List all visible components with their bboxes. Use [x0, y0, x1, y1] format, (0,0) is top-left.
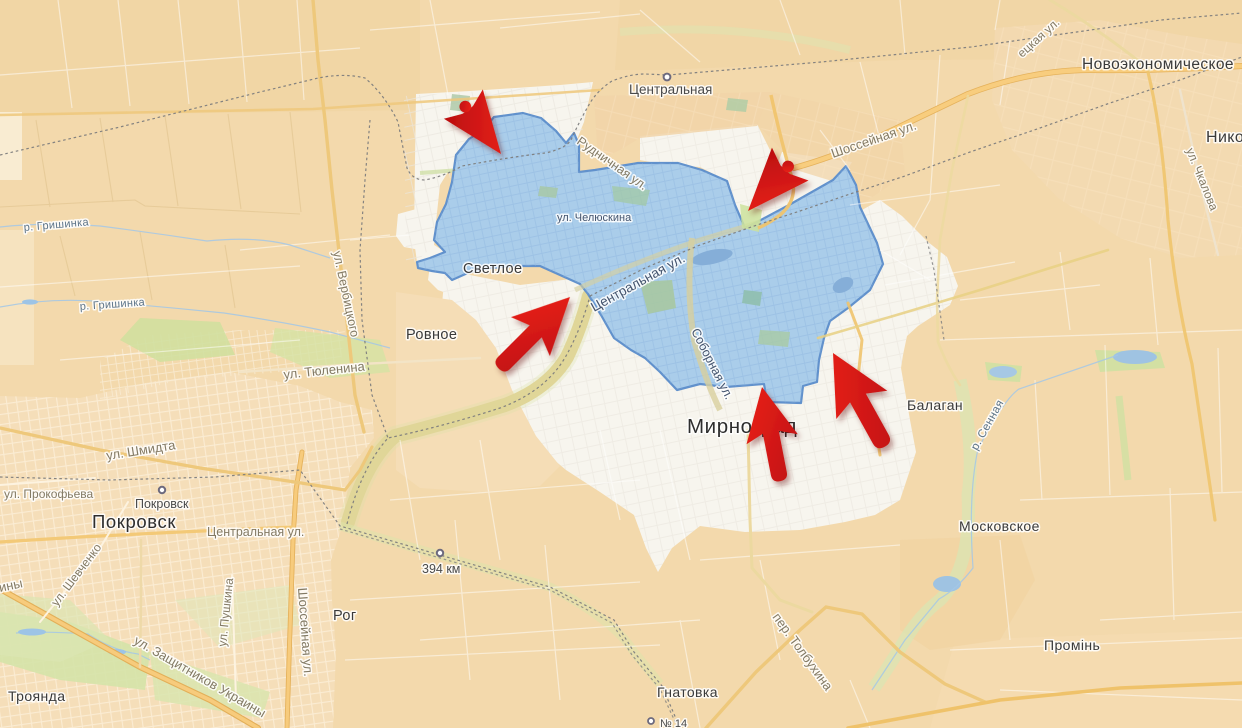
svg-text:Рог: Рог	[333, 608, 357, 624]
svg-text:Светлое: Светлое	[463, 261, 522, 277]
svg-text:Гнатовка: Гнатовка	[657, 684, 718, 700]
svg-text:Никол: Никол	[1206, 129, 1242, 146]
svg-text:Троянда: Троянда	[8, 688, 65, 704]
svg-text:ул. Челюскина: ул. Челюскина	[557, 212, 632, 224]
svg-text:Балаган: Балаган	[907, 397, 963, 413]
svg-text:394 км: 394 км	[422, 562, 460, 576]
svg-text:Покровск: Покровск	[135, 497, 189, 511]
svg-text:Новоэкономическое: Новоэкономическое	[1082, 56, 1234, 73]
svg-text:Московское: Московское	[959, 518, 1040, 534]
svg-text:ул. Прокофьева: ул. Прокофьева	[4, 487, 93, 501]
svg-text:Центральная ул.: Центральная ул.	[207, 525, 304, 539]
svg-text:Центральная: Центральная	[629, 82, 712, 97]
svg-text:№ 14: № 14	[660, 718, 687, 728]
svg-text:Промінь: Промінь	[1044, 637, 1100, 653]
svg-text:Ровное: Ровное	[406, 327, 457, 343]
svg-text:Покровск: Покровск	[92, 511, 176, 532]
